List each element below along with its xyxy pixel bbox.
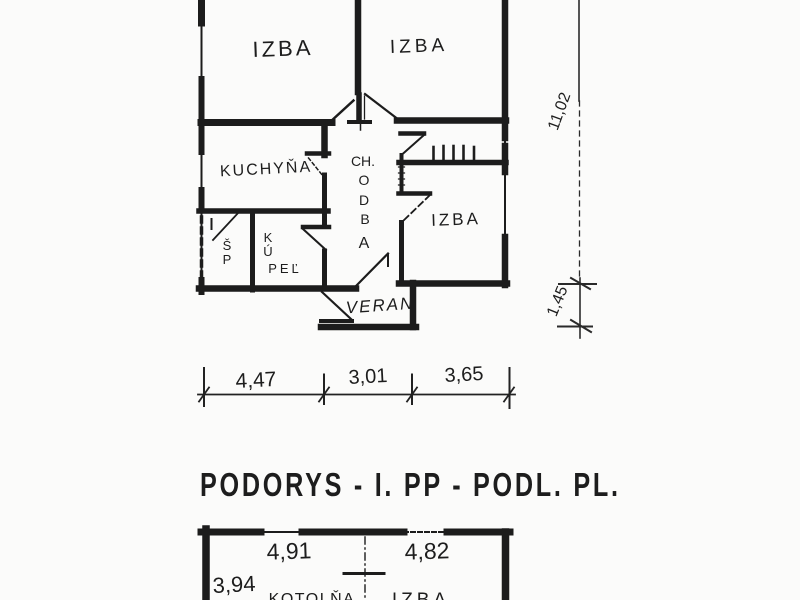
svg-text:KOTOLŇA: KOTOLŇA (269, 589, 356, 600)
svg-text:IZBA: IZBA (431, 209, 481, 230)
svg-text:3,65: 3,65 (444, 363, 484, 387)
svg-text:D: D (359, 192, 369, 208)
svg-text:3,94: 3,94 (212, 571, 256, 598)
svg-text:A: A (359, 235, 370, 252)
svg-text:IZBA: IZBA (390, 35, 449, 58)
svg-text:P: P (223, 252, 232, 267)
svg-text:CH.: CH. (351, 153, 375, 169)
svg-text:3,01: 3,01 (348, 365, 388, 389)
svg-text:4,82: 4,82 (404, 537, 450, 565)
svg-text:K: K (264, 230, 273, 245)
svg-text:IZBA: IZBA (252, 35, 314, 62)
svg-text:Š: Š (223, 238, 232, 253)
svg-text:B: B (360, 211, 369, 227)
svg-text:Ú: Ú (263, 244, 272, 259)
svg-text:4,91: 4,91 (266, 537, 312, 565)
svg-text:IZBA: IZBA (392, 590, 450, 600)
svg-text:PEĽ: PEĽ (268, 261, 302, 276)
svg-text:PODORYS - I. PP - PODL. PL.: PODORYS - I. PP - PODL. PL. (200, 467, 621, 504)
svg-text:O: O (359, 172, 370, 188)
svg-text:4,47: 4,47 (235, 368, 277, 393)
